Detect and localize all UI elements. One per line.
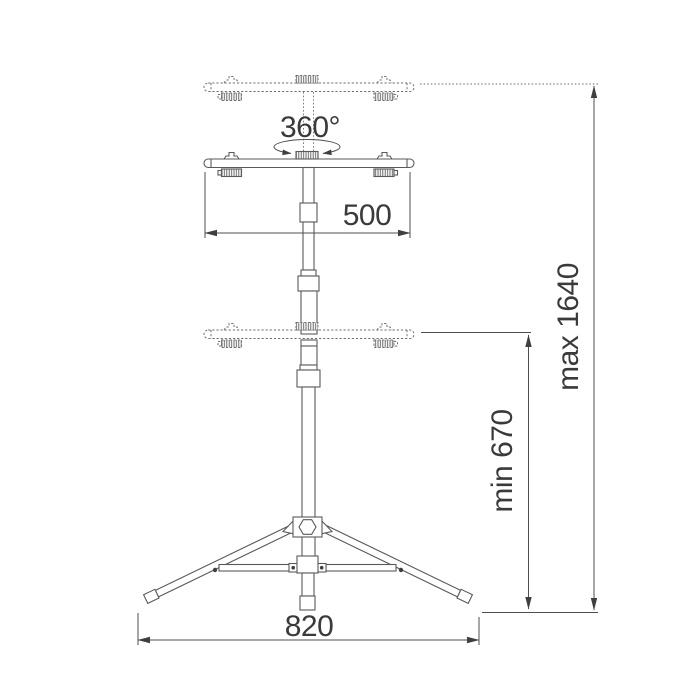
hub-hex-knob-icon <box>299 520 316 535</box>
diagram-canvas: 360° <box>0 0 700 700</box>
dimension-max-height: max 1640 <box>420 84 598 613</box>
center-post <box>302 573 314 596</box>
tripod-technical-drawing: 360° <box>0 0 700 700</box>
base-width-label: 820 <box>285 610 334 643</box>
leg-bolt-right <box>399 568 403 572</box>
dimension-min-height: min 670 <box>421 333 531 610</box>
tripod-leg-left <box>144 522 298 603</box>
upper-collar-clamp <box>298 276 319 291</box>
crossbar-width-label: 500 <box>343 199 392 232</box>
crossbar-raised-position <box>204 76 414 101</box>
leg-brace-right <box>326 565 396 572</box>
tripod-base <box>144 517 473 610</box>
center-foot <box>300 596 315 610</box>
max-height-label: max 1640 <box>552 263 585 391</box>
telescopic-pole <box>297 168 320 558</box>
leg-bolt-left <box>213 568 217 572</box>
center-bracket <box>297 556 318 573</box>
dimension-base-width: 820 <box>138 610 479 645</box>
pole-knurled-knob <box>300 203 317 222</box>
leg-brace-left <box>219 565 290 572</box>
lower-collar-clamp <box>297 370 320 387</box>
min-height-label: min 670 <box>486 409 519 512</box>
tripod-leg-right <box>318 522 472 603</box>
